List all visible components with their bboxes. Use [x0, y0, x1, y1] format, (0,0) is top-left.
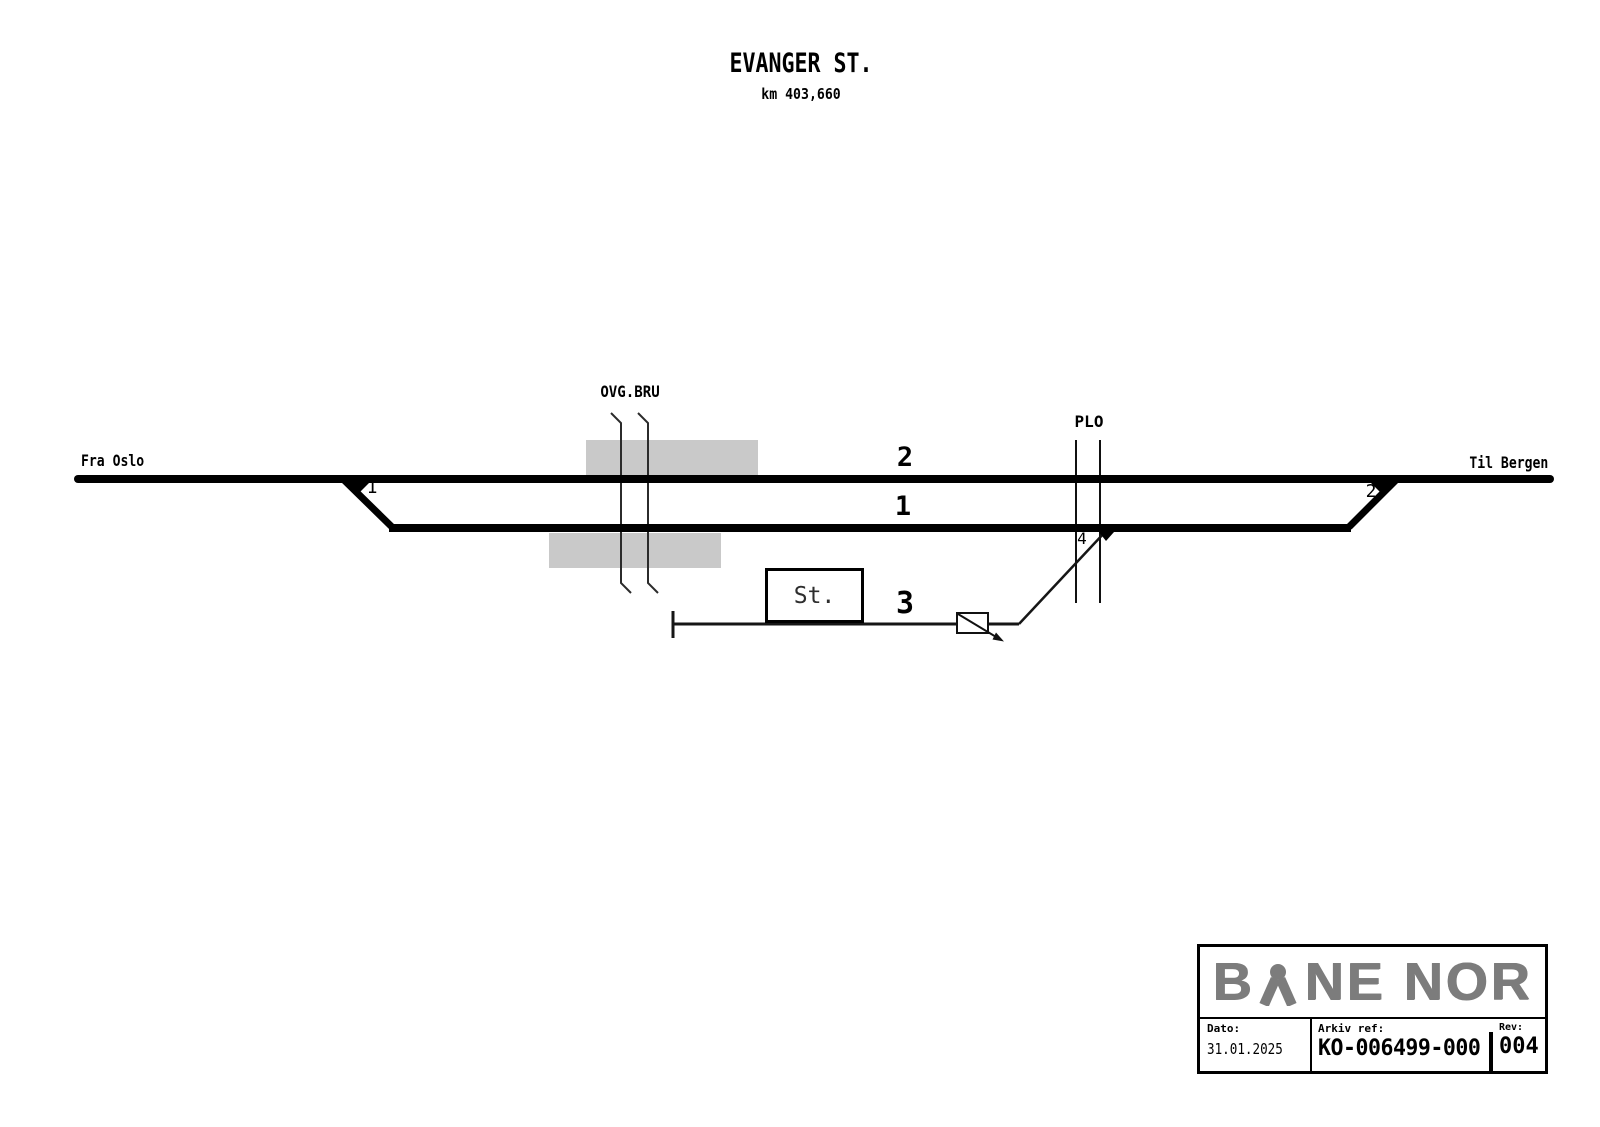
derailer-arrowhead — [993, 633, 1005, 642]
track-3-number: 3 — [885, 586, 925, 621]
platform-north — [586, 440, 758, 475]
switch-4-number: 4 — [1071, 529, 1093, 548]
track-1-number: 1 — [883, 491, 923, 522]
km-position-label: km 403,660 — [625, 85, 977, 103]
date-cell: Dato: 31.01.2025 — [1200, 1019, 1312, 1071]
overpass-bridge-label: OVG.BRU — [550, 382, 710, 401]
rev-cell: Rev: 004 — [1492, 1019, 1545, 1071]
title-block-info-row: Dato: 31.01.2025 Arkiv ref: KO-006499-00… — [1200, 1017, 1545, 1071]
tunnel-tracks-icon — [1255, 962, 1301, 1006]
date-label: Dato: — [1207, 1022, 1306, 1035]
archive-ref-cell: Arkiv ref: KO-006499-000 — [1312, 1019, 1492, 1071]
rev-divider — [1489, 1032, 1493, 1071]
station-building-label: St. — [794, 583, 836, 609]
logo-letters-ne-nor: NE NOR — [1304, 956, 1532, 1009]
track-2-number: 2 — [885, 442, 925, 473]
rev-label: Rev: — [1499, 1022, 1545, 1033]
switch-1-number: 1 — [361, 477, 383, 498]
archive-ref-value: KO-006499-000 — [1318, 1036, 1489, 1061]
station-building: St. — [765, 568, 864, 623]
archive-ref-label: Arkiv ref: — [1318, 1022, 1492, 1035]
rev-value: 004 — [1499, 1034, 1545, 1059]
switch-2-number: 2 — [1360, 481, 1382, 502]
logo-letter-b: B — [1212, 956, 1254, 1009]
direction-to-bergen-label: Til Bergen — [1469, 453, 1548, 472]
title-block: B NE NOR Dato: 31.01.2025 Arkiv ref: KO-… — [1197, 944, 1548, 1074]
platform-south — [549, 533, 721, 568]
page-title: EVANGER ST. — [641, 48, 961, 79]
track-plan-page: EVANGER ST. km 403,660 Fra Oslo Til Berg… — [0, 0, 1600, 1127]
level-crossing-label: PLO — [1039, 412, 1139, 431]
bane-nor-logo: B NE NOR — [1200, 947, 1545, 1017]
direction-from-oslo-label: Fra Oslo — [81, 451, 144, 470]
date-value: 31.01.2025 — [1207, 1040, 1290, 1058]
